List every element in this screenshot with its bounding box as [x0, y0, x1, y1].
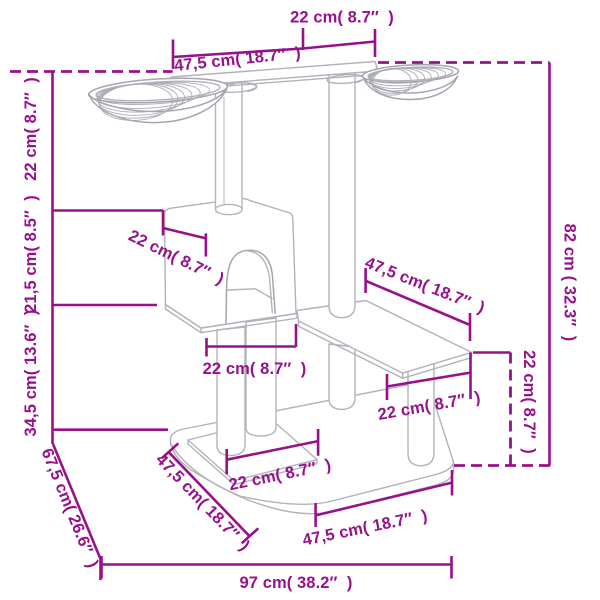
- svg-text:21,5 cm( 8.5″ ): 21,5 cm( 8.5″ ): [22, 195, 40, 313]
- svg-text:34,5 cm( 13.6″ ): 34,5 cm( 13.6″ ): [22, 309, 40, 436]
- svg-text:22 cm( 8.7″ ): 22 cm( 8.7″ ): [203, 360, 307, 378]
- svg-text:22 cm( 8.7″ ): 22 cm( 8.7″ ): [290, 9, 394, 27]
- svg-text:22 cm( 8.7″ ): 22 cm( 8.7″ ): [520, 350, 538, 454]
- svg-text:67,5 cm( 26.6″ ): 67,5 cm( 26.6″ ): [38, 446, 102, 571]
- svg-text:82 cm ( 32.3″ ): 82 cm ( 32.3″ ): [561, 224, 579, 342]
- svg-text:97 cm( 38.2″ ): 97 cm( 38.2″ ): [239, 574, 352, 592]
- svg-text:22 cm( 8.7″ ): 22 cm( 8.7″ ): [22, 77, 40, 181]
